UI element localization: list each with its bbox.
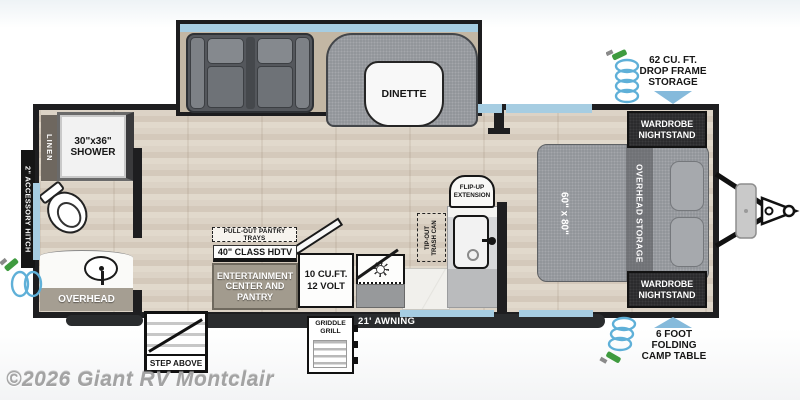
watermark: ©2026 Giant RV Montclair [6,368,274,392]
entertainment-line1: ENTERTAINMENT [217,271,293,281]
wardrobe-nightstand-front: WARDROBE NIGHTSTAND [627,271,707,308]
pantry-trays-label: PULL-OUT PANTRY TRAYS [213,228,296,242]
sofa-armrest-left [190,37,205,109]
kitchen-sink [453,215,489,269]
spray-port-coil-front [598,312,644,368]
kitchen-drain [467,249,479,261]
dinette-label: DINETTE [382,88,427,100]
bath-sink [84,256,118,281]
entertainment-line3: PANTRY [237,292,273,302]
sink-faucet [101,271,104,285]
sofa-console [246,37,255,109]
griddle-grill-box: GRIDDLE GRILL [307,316,354,374]
oven [356,284,405,308]
flip-up-extension: FLIP-UP EXTENSION [449,175,495,208]
pantry-trays-box: PULL-OUT PANTRY TRAYS [212,227,297,242]
hitch-assembly [700,158,800,262]
drop-frame-storage-note: 62 CU. FT. DROP FRAME STORAGE [626,56,720,88]
bed-pillow [670,161,704,211]
sofa-seatback [207,38,244,64]
shower-size: 30"x36" [74,136,111,147]
stove [356,254,405,284]
griddle-grate [313,340,347,368]
griddle-clip [352,341,358,348]
rear-window [33,183,40,260]
kitchen-faucet-knob [488,237,496,245]
kitchen-counter [402,268,450,310]
floorplan-stage: DINETTE LINEN 30"x36" SHOWER OVERHEAD PU… [0,0,800,400]
bedroom-wall [497,202,507,312]
wardrobe-nightstand-rear: WARDROBE NIGHTSTAND [627,111,707,148]
battery-box-dot [744,209,748,213]
sofa-cushion [257,66,294,108]
flip-up-line1: FLIP-UP [460,184,485,192]
trash-can-label: TIP-OUT TRASH CAN [419,214,445,262]
flip-up-line2: EXTENSION [454,192,490,200]
trash-can-box: TIP-OUT TRASH CAN [417,213,446,262]
drop-frame-arrow-icon [654,91,692,104]
awning-label: 21' AWNING [358,316,415,327]
bathroom-wall-upper [133,148,142,238]
sofa-armrest-right [295,37,310,109]
sofa-seat-right [256,37,295,109]
bedroom-wall-stub-cap [488,128,510,134]
bathroom-wall-lower [133,290,142,314]
griddle-clip [352,357,358,364]
bath-overhead-cabinet: OVERHEAD [40,288,133,311]
refrigerator-line2: 12 VOLT [307,281,345,292]
rear-awning-bar [66,315,143,326]
overhead-storage-label: OVERHEAD STORAGE [635,164,645,263]
shower-label: SHOWER [71,147,116,158]
hdtv-label: 40" CLASS HDTV [218,247,292,257]
sofa-cushion [207,66,244,108]
bedroom-top-window [506,104,592,113]
galley-top-window [478,104,502,113]
linen-cabinet: LINEN [41,115,58,181]
overhead-storage-band: OVERHEAD STORAGE [626,145,653,281]
bath-overhead-label: OVERHEAD [58,294,115,305]
linen-label: LINEN [45,134,54,162]
refrigerator: 10 CU.FT. 12 VOLT [298,253,354,308]
sofa-seatback [257,38,294,64]
theater-seating [186,33,314,113]
dinette-table: DINETTE [364,61,444,127]
entertainment-cabinet: ENTERTAINMENT CENTER AND PANTRY [212,263,298,310]
entry-step-box: STEP ABOVE [144,311,208,373]
griddle-clip [352,325,358,332]
bed-size: 60" x 80" [552,145,576,281]
living-slideout: DINETTE [176,20,482,116]
entertainment-line2: CENTER AND [226,281,285,291]
camp-table-arrow-icon [654,317,692,328]
griddle-label: GRIDDLE GRILL [309,318,352,336]
hdtv-box: 40" CLASS HDTV [213,245,297,262]
coupler-pin [766,208,773,215]
step-label: STEP ABOVE [150,359,202,368]
coupler-ball-socket [784,206,794,216]
sofa-seat-left [206,37,245,109]
dinette-booth: DINETTE [326,33,478,127]
bed-pillow [670,217,704,267]
kitchen-bottom-window [400,310,494,317]
spray-nozzle-icon [605,351,621,364]
refrigerator-line1: 10 CU.FT. [305,269,348,280]
bedroom-bottom-window [519,310,593,317]
bed: 60" x 80" OVERHEAD STORAGE [537,144,709,282]
slideout-window [180,24,478,32]
